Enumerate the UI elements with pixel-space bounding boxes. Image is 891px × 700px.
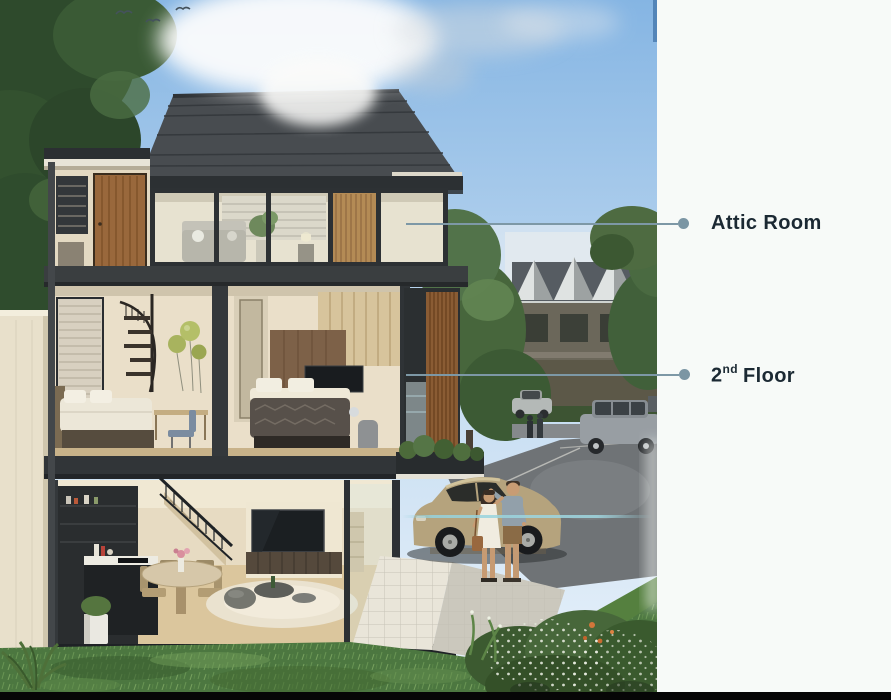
attic-room-label: Attic Room: [711, 212, 822, 235]
attic-leader-dot: [678, 218, 689, 229]
label-panel: [657, 0, 891, 700]
second-floor-ordinal: nd: [723, 362, 738, 376]
attic-room: [150, 188, 448, 267]
second-floor-label: 2ndFloor: [711, 363, 795, 388]
second-floor-leader-dot: [679, 369, 690, 380]
first-floor-leader-line: [402, 515, 652, 518]
top-accent-line: [653, 0, 657, 42]
second-floor-leader-line: [406, 374, 679, 376]
attic-leader-line: [406, 223, 678, 225]
balcony: [404, 288, 460, 458]
attic-room-label-text: Attic Room: [711, 212, 822, 234]
second-floor-label-text: Floor: [743, 365, 795, 387]
stair-tower: [44, 148, 150, 268]
second-floor: [55, 286, 410, 465]
bottom-letterbox-bar: [0, 692, 891, 700]
second-floor-number: 2: [711, 365, 723, 387]
boundary-wall: [0, 310, 48, 692]
screenshot-root: Attic Room 2ndFloor: [0, 0, 891, 700]
